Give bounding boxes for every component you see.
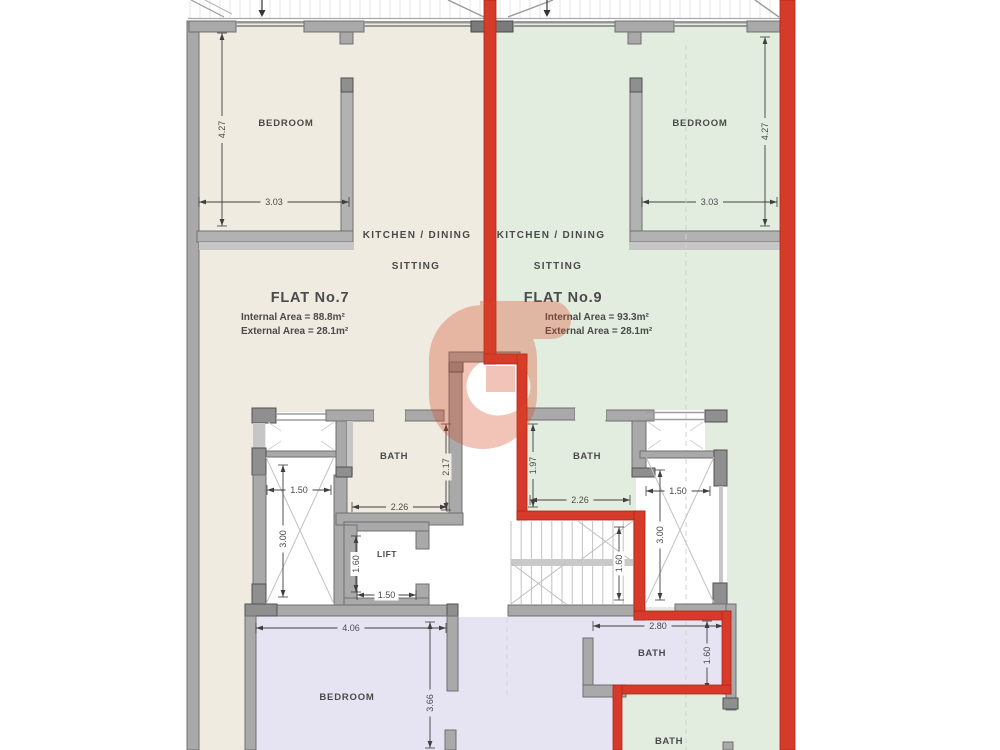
- svg-text:1.50: 1.50: [669, 486, 687, 496]
- svg-text:2.26: 2.26: [571, 495, 589, 505]
- svg-text:LIFT: LIFT: [377, 549, 397, 559]
- svg-text:BEDROOM: BEDROOM: [258, 118, 313, 129]
- svg-text:KITCHEN / DINING: KITCHEN / DINING: [497, 230, 606, 241]
- svg-text:BEDROOM: BEDROOM: [319, 692, 374, 703]
- svg-text:4.27: 4.27: [760, 123, 770, 141]
- svg-text:3.00: 3.00: [278, 530, 288, 548]
- svg-text:1.50: 1.50: [378, 590, 396, 600]
- svg-text:4.06: 4.06: [342, 623, 360, 633]
- svg-text:1.97: 1.97: [528, 457, 538, 475]
- svg-text:SITTING: SITTING: [392, 261, 441, 272]
- svg-text:1.60: 1.60: [702, 647, 712, 665]
- svg-text:External Area = 28.1m²: External Area = 28.1m²: [241, 326, 349, 337]
- svg-text:2.26: 2.26: [391, 502, 409, 512]
- svg-text:2.80: 2.80: [649, 621, 667, 631]
- svg-text:BATH: BATH: [380, 451, 408, 462]
- svg-text:3.03: 3.03: [701, 197, 719, 207]
- svg-text:3.66: 3.66: [425, 694, 435, 712]
- svg-text:BATH: BATH: [573, 451, 601, 462]
- svg-text:2.17: 2.17: [441, 458, 451, 476]
- svg-text:3.00: 3.00: [655, 526, 665, 544]
- svg-text:1.60: 1.60: [351, 555, 361, 573]
- svg-text:1.50: 1.50: [290, 485, 308, 495]
- svg-text:Internal Area = 88.8m²: Internal Area = 88.8m²: [241, 312, 346, 323]
- svg-text:KITCHEN / DINING: KITCHEN / DINING: [363, 230, 472, 241]
- svg-text:BATH: BATH: [638, 648, 666, 659]
- svg-text:BATH: BATH: [655, 736, 683, 747]
- svg-text:BEDROOM: BEDROOM: [672, 118, 727, 129]
- svg-text:3.03: 3.03: [265, 197, 283, 207]
- svg-text:SITTING: SITTING: [534, 261, 583, 272]
- svg-text:FLAT No.7: FLAT No.7: [271, 290, 350, 306]
- svg-text:4.27: 4.27: [217, 121, 227, 139]
- svg-text:1.60: 1.60: [614, 555, 624, 573]
